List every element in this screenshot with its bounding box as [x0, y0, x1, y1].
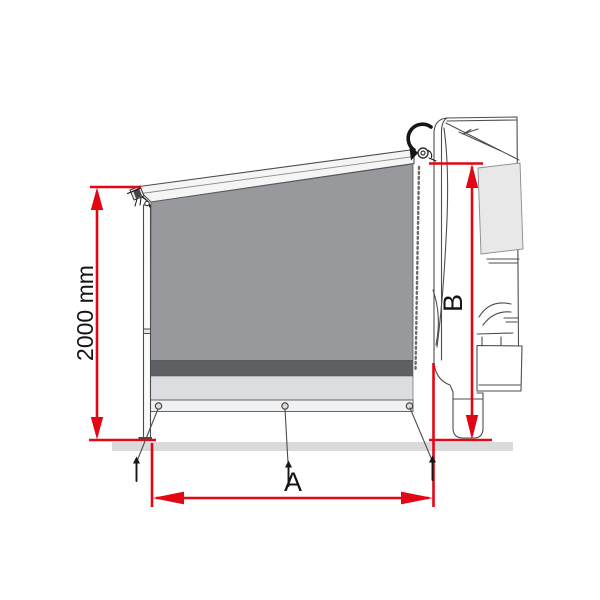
- vehicle-window: [478, 163, 523, 254]
- side-panel-dark-strip: [151, 361, 414, 377]
- peg-icon: [429, 456, 436, 481]
- side-panel: [151, 164, 420, 412]
- side-panel-light-strip: [151, 376, 414, 400]
- width-label: A: [284, 467, 302, 497]
- pole-joint: [144, 329, 151, 334]
- awning-diagram-svg: 2000 mm A B: [0, 0, 600, 600]
- height-label: 2000 mm: [72, 265, 98, 361]
- wall-height-label: B: [438, 294, 468, 312]
- vehicle-outline: [433, 117, 523, 438]
- diagram-canvas: 2000 mm A B: [0, 0, 600, 600]
- support-pole: [139, 205, 153, 441]
- peg-icon: [133, 457, 140, 482]
- roller-rotation-detail: [408, 124, 436, 161]
- zipper-line: [416, 167, 420, 371]
- ground-shadow: [112, 442, 513, 451]
- rotation-arrow-icon: [408, 124, 431, 150]
- guy-lines: [137, 408, 432, 463]
